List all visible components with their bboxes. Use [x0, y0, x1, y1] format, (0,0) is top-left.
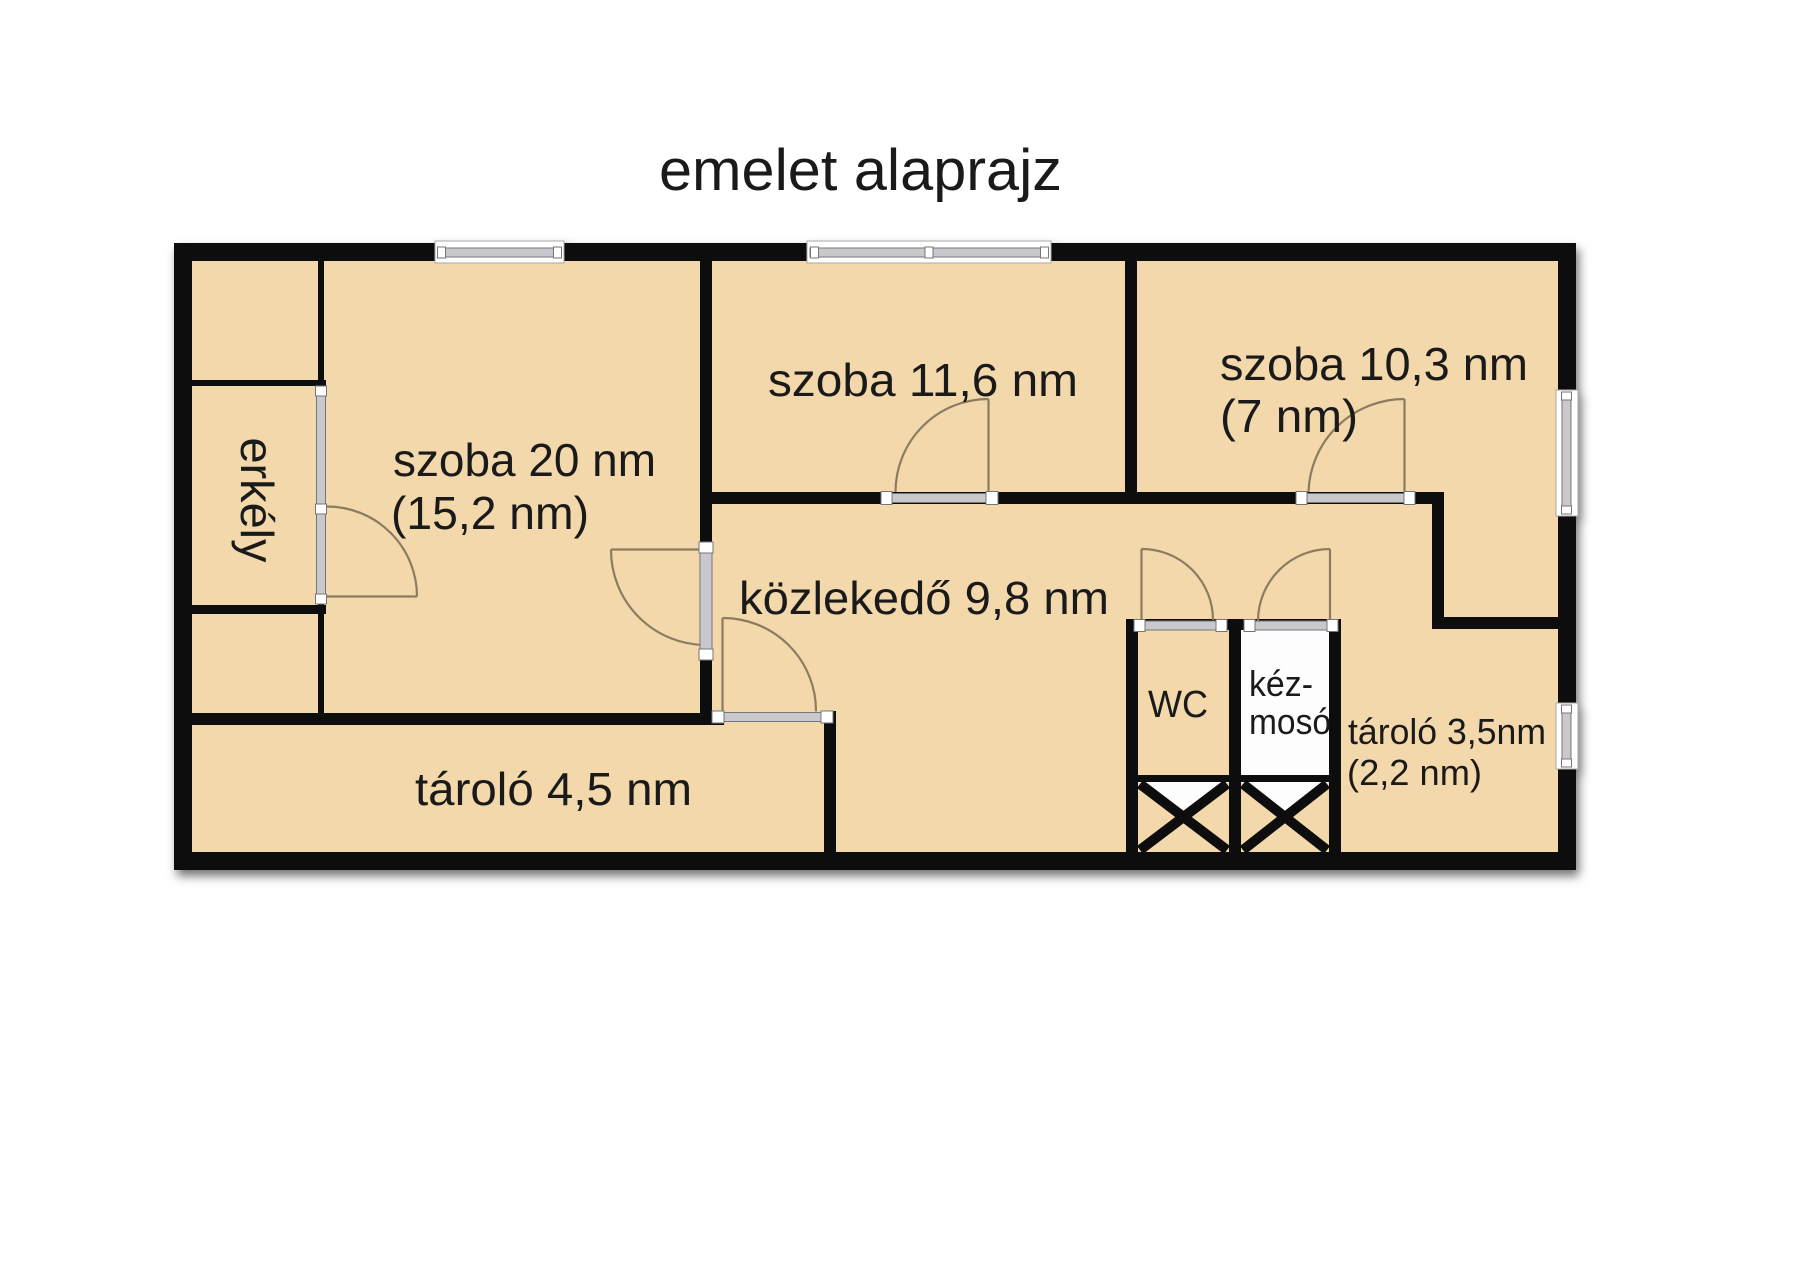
svg-text:emelet alaprajz: emelet alaprajz	[659, 138, 1062, 203]
svg-text:(15,2 nm): (15,2 nm)	[391, 487, 589, 539]
svg-text:WC: WC	[1148, 684, 1208, 726]
svg-text:tároló 4,5 nm: tároló 4,5 nm	[415, 763, 692, 815]
svg-text:szoba 10,3 nm: szoba 10,3 nm	[1220, 338, 1528, 390]
svg-text:erkély: erkély	[231, 438, 283, 563]
svg-text:közlekedő 9,8 nm: közlekedő 9,8 nm	[739, 572, 1109, 624]
svg-text:mosó: mosó	[1249, 701, 1331, 742]
svg-text:kéz-: kéz-	[1249, 663, 1313, 704]
svg-text:szoba 20 nm: szoba 20 nm	[393, 434, 656, 486]
svg-text:(7 nm): (7 nm)	[1220, 390, 1358, 442]
svg-text:tároló 3,5nm: tároló 3,5nm	[1348, 711, 1546, 752]
svg-text:szoba 11,6 nm: szoba 11,6 nm	[768, 354, 1078, 406]
svg-text:(2,2 nm): (2,2 nm)	[1347, 752, 1482, 793]
